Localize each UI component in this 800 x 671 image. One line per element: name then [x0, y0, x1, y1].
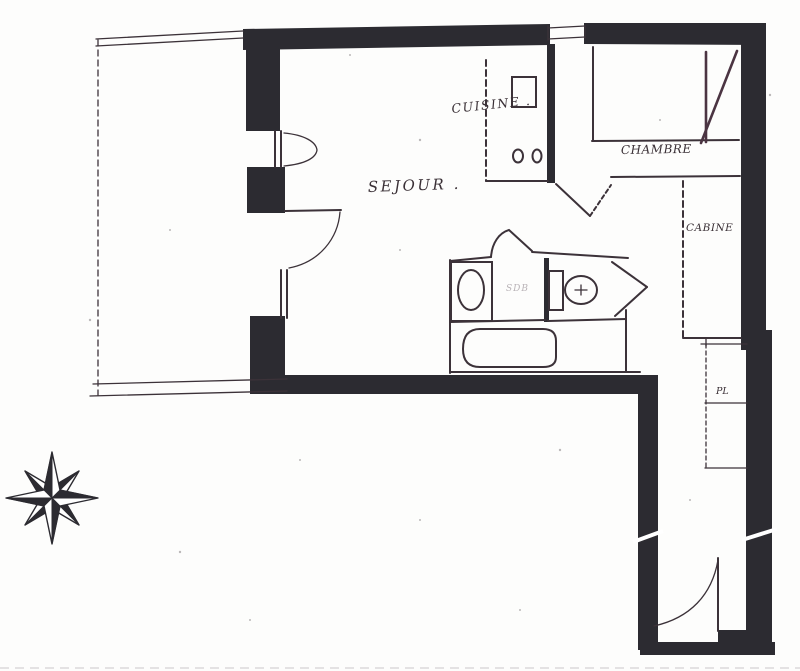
compass-north-fill [44, 452, 52, 498]
bathroom-faint-label: SDB [506, 284, 529, 294]
kitchen-wall [547, 44, 555, 183]
cuisine-label: CUISINE . [451, 93, 532, 116]
speck-dot [399, 249, 401, 251]
wc-bottom-line [548, 319, 626, 321]
wc-door-panel [612, 262, 647, 287]
bath-entry-door [491, 230, 532, 257]
floor-plan-drawing: CUISINE . CHAMBRE CABINE PL [0, 0, 800, 671]
corridor-left-wall [638, 385, 658, 650]
chambre: CHAMBRE [592, 47, 739, 157]
balcony-doors [275, 131, 341, 318]
compass-east-fill [52, 490, 98, 498]
toilet-tank [549, 271, 563, 310]
top-window [548, 26, 585, 40]
speck-dot [89, 319, 91, 321]
french-door-swing-arc [289, 212, 340, 268]
hall-door-panel [556, 184, 590, 216]
chambre-bottom-line [592, 140, 739, 141]
top-wall-chambre [584, 23, 766, 45]
sejour-bottom-wall [250, 375, 658, 394]
hall-door-swing [590, 185, 611, 216]
hallway [556, 176, 740, 216]
corridor-bottom-step [718, 630, 748, 644]
window-line-outer [548, 26, 585, 28]
speck-dot [349, 54, 351, 56]
speck-dot [299, 459, 301, 461]
speck-dot [419, 519, 421, 521]
bathtub [463, 329, 556, 367]
bath-top-right [532, 252, 628, 258]
entry-door-swing-arc [654, 560, 718, 626]
cabine-label: CABINE [686, 222, 733, 234]
compass-rose [6, 452, 98, 544]
closets: PL [701, 344, 747, 468]
balcony-top-line-inner [96, 38, 243, 46]
chambre-label: CHAMBRE [621, 142, 692, 157]
cabine: CABINE [683, 181, 741, 346]
right-wall-upper [741, 24, 766, 350]
speck-dot [559, 449, 561, 451]
sejour-label: SEJOUR . [368, 175, 462, 196]
small-door-swing-arc [284, 133, 317, 166]
balcony-top-line-outer [96, 31, 243, 39]
closet-label: PL [715, 386, 729, 397]
wc-door-swing [615, 287, 647, 316]
speck-dot [249, 619, 251, 621]
balcony-wall-upper [246, 30, 280, 131]
floor-plan-page: CUISINE . CHAMBRE CABINE PL [0, 0, 800, 671]
speck-dot [169, 229, 171, 231]
speck-dot [689, 499, 691, 501]
right-wall-lower [746, 330, 772, 655]
speck-dot [769, 94, 771, 96]
compass-west-fill [6, 498, 52, 506]
speck-dot [419, 139, 421, 141]
kitchen-burner-1 [513, 150, 523, 163]
speck-dot [519, 609, 521, 611]
entry-door [654, 558, 718, 631]
speck-dot [179, 551, 181, 553]
balcony-wall-lower [250, 316, 285, 378]
compass-south-fill [52, 498, 60, 544]
bathroom: SDB [450, 230, 647, 373]
window-line-inner [548, 37, 585, 39]
kitchen: CUISINE . [451, 60, 548, 181]
corridor-bottom-wall [640, 642, 775, 655]
kitchen-burner-2 [533, 150, 542, 163]
washbasin-bowl [458, 270, 484, 310]
french-door-open-panel [285, 210, 341, 211]
hall-top-line [611, 176, 740, 177]
speck-dot [659, 119, 661, 121]
bath-top-left [450, 257, 491, 261]
balcony-wall-mid [247, 167, 285, 213]
top-wall-sejour [243, 24, 550, 50]
